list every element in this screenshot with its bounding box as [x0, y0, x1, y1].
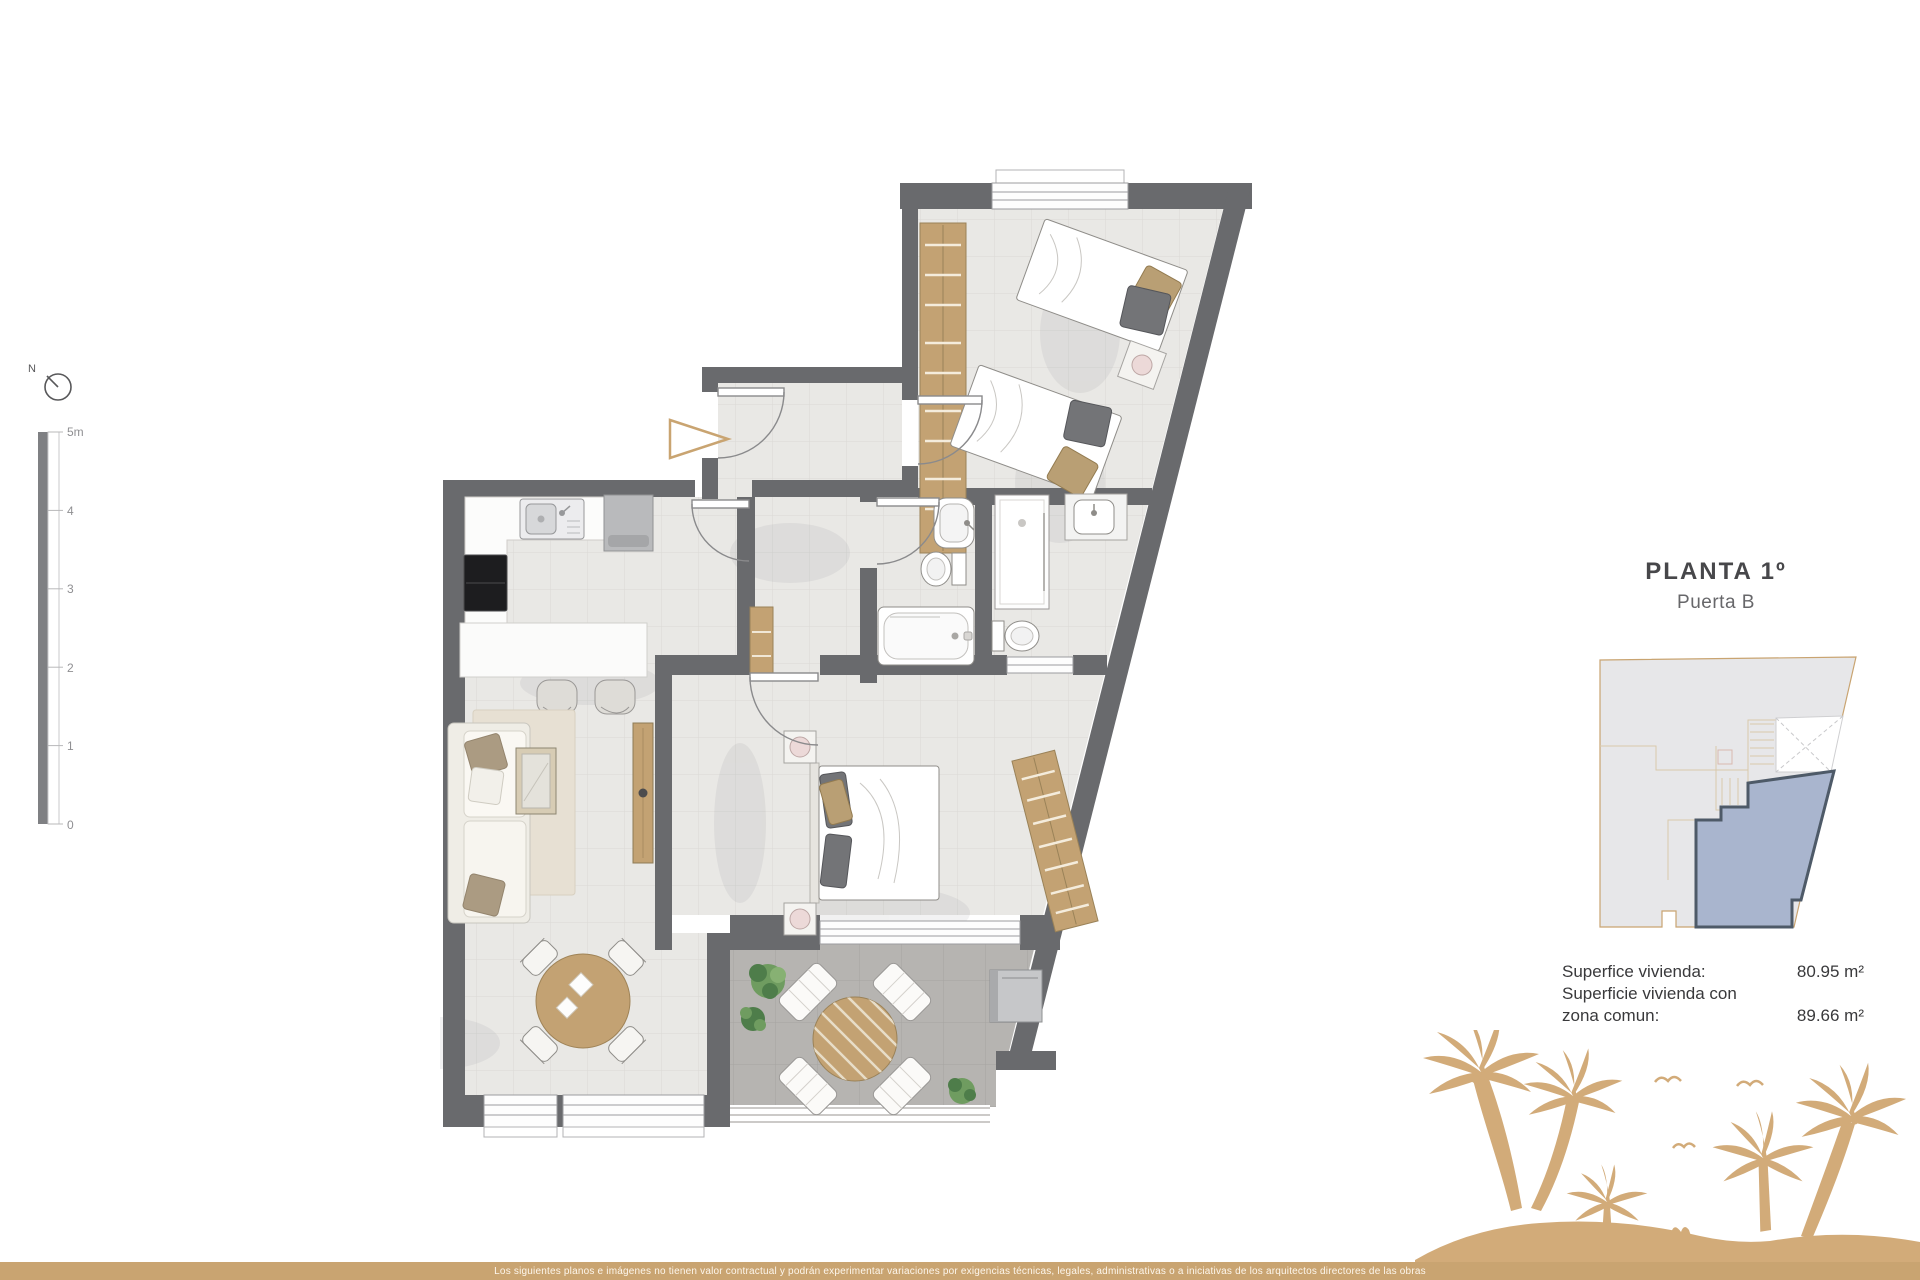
plan-title-block: PLANTA 1º Puerta B [1596, 558, 1836, 614]
disclaimer-text: Los siguientes planos e imágenes no tien… [0, 1262, 1920, 1280]
double-bed [819, 766, 939, 900]
scale-label-4: 4 [67, 504, 74, 518]
scale-bar: 5m 4 3 2 1 0 [30, 426, 100, 836]
area-label: Superfice vivienda: [1562, 961, 1706, 983]
window-living-1 [484, 1095, 557, 1137]
area-row: Superfice vivienda: 80.95 m² [1562, 961, 1864, 983]
area-row: Superficie vivienda con [1562, 983, 1864, 1005]
window-living-2 [563, 1095, 704, 1137]
palm-trees-decoration [1415, 1030, 1920, 1262]
shower-icon [995, 495, 1049, 609]
area-row: zona comun: 89.66 m² [1562, 1005, 1864, 1027]
appliance-handle [608, 535, 649, 547]
window-master-bedroom [820, 921, 1020, 944]
area-value: 89.66 m² [1797, 1005, 1864, 1027]
washbasin-icon [934, 498, 974, 548]
scale-bar-box [48, 432, 59, 824]
area-value: 80.95 m² [1797, 961, 1864, 983]
dining-table-set [520, 938, 646, 1064]
stair-core [1776, 716, 1843, 772]
dining-table [536, 954, 630, 1048]
hall-closet [750, 607, 773, 681]
kitchen-island [460, 623, 647, 677]
laundry-sink-icon [1065, 494, 1127, 540]
ac-unit [990, 970, 1042, 1022]
scale-label-3: 3 [67, 582, 74, 596]
toilet-icon [921, 552, 966, 586]
pillow [1119, 285, 1171, 336]
toilet-icon [992, 621, 1039, 651]
scale-label-0: 0 [67, 818, 74, 832]
palm-silhouette [1415, 1030, 1920, 1262]
scale-label-1: 1 [67, 739, 74, 753]
page-subtitle: Puerta B [1596, 592, 1836, 614]
scale-label-2: 2 [67, 661, 74, 675]
scale-label-5m: 5m [67, 426, 84, 439]
key-plan [1598, 650, 1864, 938]
coffee-table [516, 748, 556, 814]
compass-north-label: N [28, 363, 36, 375]
window-twin-bedroom [992, 170, 1128, 209]
floorplan-page: N 5m 4 3 2 1 0 [0, 0, 1920, 1280]
scale-bar-solid [38, 432, 48, 824]
headboard [810, 763, 819, 903]
tv-console [633, 723, 653, 863]
footer-bar: Los siguientes planos e imágenes no tien… [0, 1262, 1920, 1280]
nightstand [784, 903, 816, 935]
bathtub-icon [878, 607, 974, 665]
area-label: zona comun: [1562, 1005, 1659, 1027]
pillow [1063, 400, 1112, 448]
kitchen-sink-icon [520, 499, 584, 539]
floor-plan [440, 163, 1260, 1138]
nightstand [784, 731, 816, 763]
area-label: Superficie vivienda con [1562, 983, 1737, 1005]
compass-icon: N [22, 358, 86, 410]
lamp-icon [790, 909, 810, 929]
page-title: PLANTA 1º [1596, 558, 1836, 586]
tv-icon [639, 789, 648, 798]
surface-areas: Superfice vivienda: 80.95 m² Superficie … [1562, 961, 1864, 1027]
terrace-glass-balustrade [730, 1105, 990, 1125]
